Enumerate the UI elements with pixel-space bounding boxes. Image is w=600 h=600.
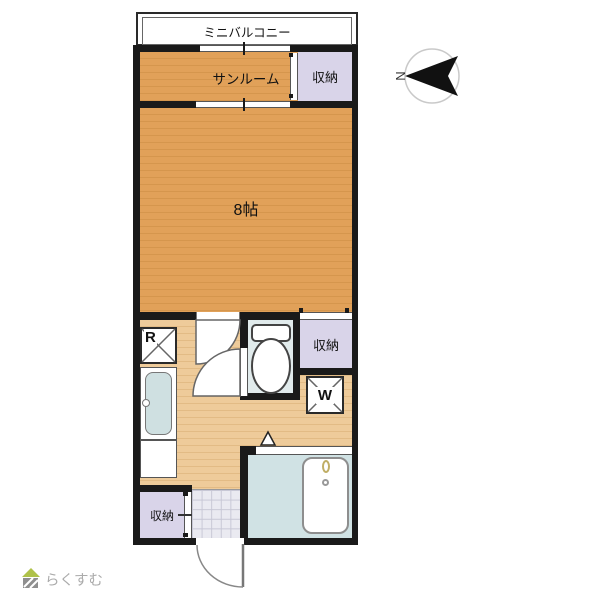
main-room-label-text: 8帖 [234, 196, 259, 220]
main-room-label: 8帖 [206, 196, 286, 220]
closet-middle-right-label: 収納 [300, 333, 352, 355]
sunroom-label-text: サンルーム [212, 68, 279, 88]
compass: N [0, 0, 600, 600]
logo-roof-shape [22, 568, 40, 577]
logo-text: らくすむ [45, 572, 103, 589]
logo-house-icon: らくすむ [20, 566, 150, 590]
sunroom-label: サンルーム [196, 67, 296, 89]
floorplan-canvas: ミニバルコニー [0, 0, 600, 600]
closet-bottom-left-label-text: 収納 [150, 507, 174, 524]
closet-top-right-label: 収納 [298, 65, 352, 87]
closet-bottom-left-label: 収納 [140, 505, 184, 525]
closet-middle-right-label-text: 収納 [313, 335, 339, 354]
closet-top-right-label-text: 収納 [312, 67, 338, 86]
watermark-logo: らくすむ [20, 566, 150, 590]
compass-north-label: N [393, 71, 408, 80]
compass-north-arrow [405, 56, 458, 96]
